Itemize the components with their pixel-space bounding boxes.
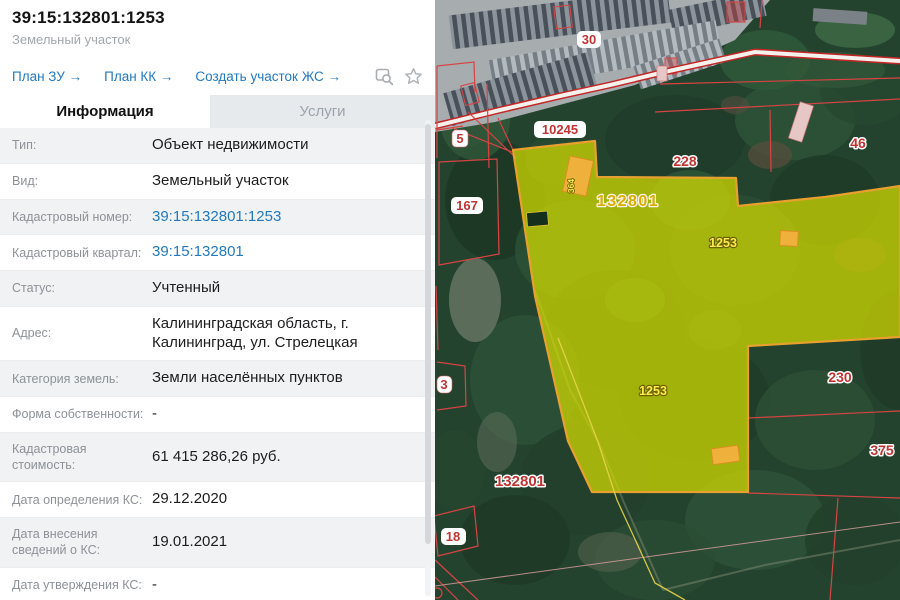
building-orange-2: [780, 231, 799, 247]
info-row-type: Тип: Объект недвижимости: [0, 128, 435, 164]
svg-text:18: 18: [446, 529, 460, 544]
svg-text:3: 3: [440, 377, 447, 392]
map-marker-5[interactable]: 5: [452, 130, 468, 147]
map-label-230: 230: [828, 369, 852, 385]
row-value: Объект недвижимости: [152, 136, 423, 155]
map-label-parcel-1253-top: 1253: [709, 236, 737, 250]
info-row-ks-determination-date: Дата определения КС: 29.12.2020: [0, 482, 435, 518]
star-icon[interactable]: [404, 67, 423, 86]
plan-zu-link[interactable]: План ЗУ →: [12, 69, 82, 84]
panel-header: 39:15:132801:1253 Земельный участок План…: [0, 0, 435, 95]
row-label: Статус:: [12, 280, 152, 296]
row-value: Земли населённых пунктов: [152, 369, 423, 388]
info-row-ownership-form: Форма собственности: -: [0, 397, 435, 433]
row-value: 19.01.2021: [152, 533, 423, 552]
map-label-quarter-bottom: 132801: [495, 473, 545, 490]
cadastral-number-title: 39:15:132801:1253: [12, 8, 423, 28]
row-value: Земельный участок: [152, 172, 423, 191]
panel-tabs: Информация Услуги: [0, 95, 435, 128]
svg-text:30: 30: [582, 32, 596, 47]
info-panel: 39:15:132801:1253 Земельный участок План…: [0, 0, 435, 600]
tab-services[interactable]: Услуги: [210, 95, 435, 128]
map-label-46: 46: [850, 135, 866, 151]
panel-scrollbar-thumb[interactable]: [425, 124, 431, 544]
svg-text:10245: 10245: [542, 122, 578, 137]
map-marker-167[interactable]: 167: [451, 197, 483, 214]
map-marker-18[interactable]: 18: [441, 528, 466, 545]
row-value: -: [152, 405, 423, 424]
row-label: Вид:: [12, 173, 152, 189]
map-label-quarter-on-parcel: 132801: [597, 193, 659, 210]
info-row-cadastral-value: Кадастровая стоимость: 61 415 286,26 руб…: [0, 433, 435, 483]
map-label-375: 375: [870, 442, 894, 458]
building-pink-2: [657, 66, 667, 81]
info-row-cadastral-number: Кадастровый номер: 39:15:132801:1253: [0, 200, 435, 236]
svg-text:167: 167: [456, 198, 478, 213]
info-row-kind: Вид: Земельный участок: [0, 164, 435, 200]
row-value: Калининградская область, г. Калининград,…: [152, 315, 423, 353]
map-label-building-rotated: 364: [566, 179, 576, 193]
plan-kk-link[interactable]: План КК →: [104, 69, 173, 84]
row-label: Категория земель:: [12, 371, 152, 387]
object-type-subtitle: Земельный участок: [12, 32, 423, 47]
row-label: Дата утверждения КС:: [12, 577, 152, 593]
info-row-status: Статус: Учтенный: [0, 271, 435, 307]
tab-information[interactable]: Информация: [0, 95, 210, 128]
map-label-parcel-1253-bottom: 1253: [639, 384, 667, 398]
header-icons: [375, 67, 423, 86]
info-row-ks-approval-date: Дата утверждения КС: -: [0, 568, 435, 600]
building-orange-3: [711, 445, 740, 465]
building-dark: [526, 211, 548, 227]
row-value: 61 415 286,26 руб.: [152, 448, 423, 467]
info-row-cadastral-quarter: Кадастровый квартал: 39:15:132801: [0, 235, 435, 271]
row-label: Адрес:: [12, 325, 152, 341]
cadastral-map-app: 39:15:132801:1253 Земельный участок План…: [0, 0, 900, 600]
map-marker-10245[interactable]: 10245: [534, 121, 586, 138]
area-search-icon[interactable]: [375, 67, 394, 86]
row-label: Тип:: [12, 137, 152, 153]
info-row-ks-entry-date: Дата внесения сведений о КС: 19.01.2021: [0, 518, 435, 568]
map-marker-30[interactable]: 30: [577, 31, 601, 48]
svg-text:5: 5: [456, 131, 463, 146]
map-label-228: 228: [673, 153, 697, 169]
satellite-map[interactable]: 228 46 230 375 132801 132801 1253 1253 3…: [435, 0, 900, 600]
row-value: Учтенный: [152, 279, 423, 298]
info-row-address: Адрес: Калининградская область, г. Калин…: [0, 307, 435, 362]
action-links-row: План ЗУ → План КК → Создать участок ЖС →: [12, 67, 423, 95]
row-label: Дата внесения сведений о КС:: [12, 526, 152, 559]
info-row-land-category: Категория земель: Земли населённых пункт…: [0, 361, 435, 397]
row-value: -: [152, 576, 423, 595]
cadastral-number-link[interactable]: 39:15:132801:1253: [152, 208, 423, 227]
map-marker-3[interactable]: 3: [437, 376, 452, 393]
panel-scrollbar[interactable]: [425, 120, 431, 596]
row-label: Кадастровая стоимость:: [12, 441, 152, 474]
info-rows: Тип: Объект недвижимости Вид: Земельный …: [0, 128, 435, 600]
row-label: Кадастровый квартал:: [12, 245, 152, 261]
row-label: Кадастровый номер:: [12, 209, 152, 225]
map-canvas[interactable]: 228 46 230 375 132801 132801 1253 1253 3…: [435, 0, 900, 600]
row-label: Форма собственности:: [12, 406, 152, 422]
row-label: Дата определения КС:: [12, 492, 152, 508]
row-value: 29.12.2020: [152, 490, 423, 509]
create-zhs-parcel-link[interactable]: Создать участок ЖС →: [195, 69, 341, 84]
cadastral-quarter-link[interactable]: 39:15:132801: [152, 243, 423, 262]
